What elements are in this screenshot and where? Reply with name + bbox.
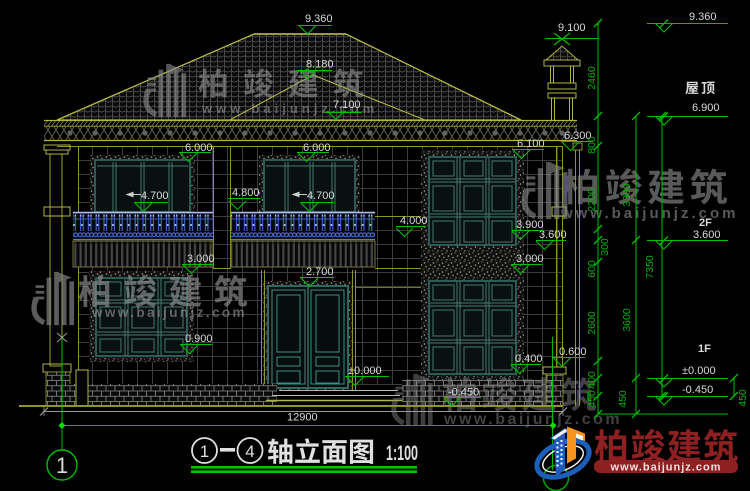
svg-text:6.100: 6.100 bbox=[517, 138, 545, 150]
svg-text:4: 4 bbox=[245, 442, 254, 461]
svg-text:9.360: 9.360 bbox=[689, 11, 717, 23]
svg-text:0.900: 0.900 bbox=[185, 333, 213, 345]
svg-text:1F: 1F bbox=[698, 343, 711, 355]
svg-text:6.000: 6.000 bbox=[303, 142, 331, 154]
svg-text:1:100: 1:100 bbox=[386, 442, 418, 465]
svg-text:±0.000: ±0.000 bbox=[682, 365, 716, 377]
svg-text:4.800: 4.800 bbox=[232, 187, 260, 199]
svg-text:300: 300 bbox=[599, 238, 611, 256]
svg-text:-0.450: -0.450 bbox=[682, 384, 713, 396]
svg-text:0.600: 0.600 bbox=[559, 346, 587, 358]
svg-text:6.900: 6.900 bbox=[692, 102, 720, 114]
svg-text:www.baijunjz.com: www.baijunjz.com bbox=[91, 305, 247, 320]
svg-text:1: 1 bbox=[200, 442, 209, 461]
svg-text:3.000: 3.000 bbox=[516, 253, 544, 265]
svg-text:8.180: 8.180 bbox=[306, 59, 334, 71]
svg-text:12900: 12900 bbox=[287, 412, 318, 424]
svg-text:450: 450 bbox=[737, 389, 749, 407]
svg-text:www.baijunjz.com: www.baijunjz.com bbox=[610, 462, 722, 474]
svg-text:-0.450: -0.450 bbox=[448, 387, 479, 399]
svg-text:9.360: 9.360 bbox=[305, 13, 333, 25]
svg-text:1: 1 bbox=[56, 453, 68, 478]
svg-text:6.000: 6.000 bbox=[185, 142, 213, 154]
svg-text:7.100: 7.100 bbox=[333, 99, 361, 111]
svg-text:3600: 3600 bbox=[621, 308, 633, 332]
svg-text:800: 800 bbox=[586, 136, 598, 154]
svg-text:2460: 2460 bbox=[586, 66, 598, 90]
svg-text:2.700: 2.700 bbox=[306, 266, 334, 278]
svg-text:600: 600 bbox=[586, 260, 598, 278]
svg-text:±0.000: ±0.000 bbox=[348, 365, 382, 377]
svg-text:450: 450 bbox=[586, 390, 598, 408]
svg-text:3300: 3300 bbox=[621, 183, 633, 207]
svg-text:2F: 2F bbox=[699, 217, 712, 229]
svg-text:4.000: 4.000 bbox=[400, 215, 428, 227]
svg-text:3.000: 3.000 bbox=[187, 253, 215, 265]
svg-text:3.600: 3.600 bbox=[693, 229, 721, 241]
svg-text:0.400: 0.400 bbox=[515, 353, 543, 365]
svg-text:450: 450 bbox=[617, 390, 629, 408]
svg-text:4.700: 4.700 bbox=[307, 190, 335, 202]
svg-text:2200: 2200 bbox=[586, 188, 598, 212]
svg-text:400: 400 bbox=[586, 371, 598, 389]
svg-text:2600: 2600 bbox=[586, 311, 598, 335]
svg-text:9.100: 9.100 bbox=[558, 22, 586, 34]
svg-text:7350: 7350 bbox=[644, 255, 656, 279]
svg-text:3.600: 3.600 bbox=[539, 229, 567, 241]
svg-text:4.700: 4.700 bbox=[141, 190, 169, 202]
